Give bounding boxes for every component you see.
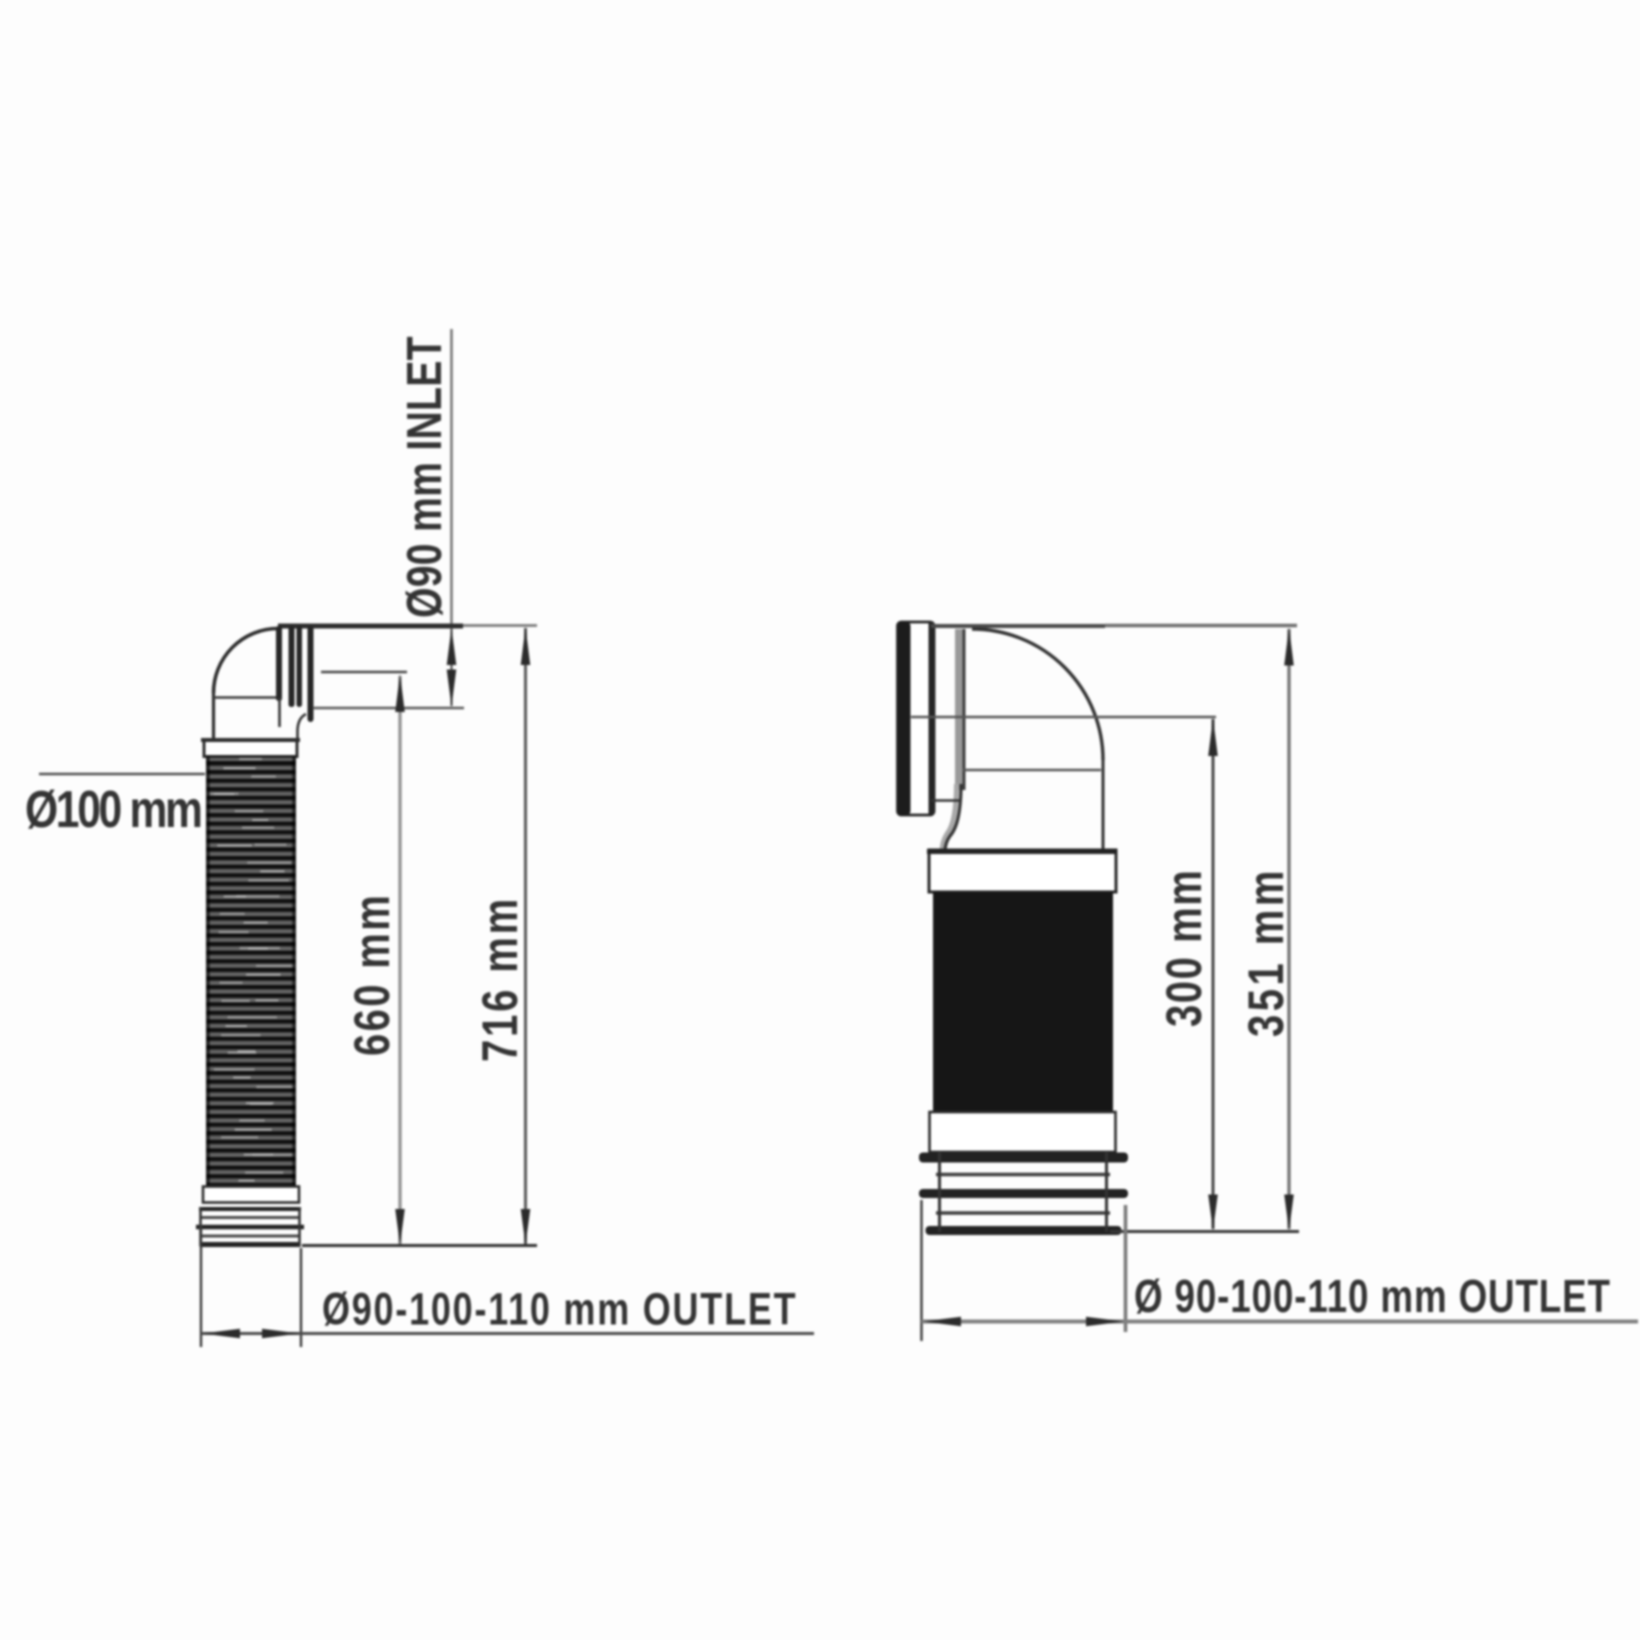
svg-text:Ø 90-100-110 mm OUTLET: Ø 90-100-110 mm OUTLET — [1134, 1270, 1610, 1322]
svg-text:716 mm: 716 mm — [472, 899, 528, 1062]
svg-text:351 mm: 351 mm — [1238, 871, 1294, 1037]
svg-text:660 mm: 660 mm — [344, 895, 400, 1056]
svg-text:Ø90 mm INLET: Ø90 mm INLET — [398, 336, 452, 618]
svg-text:Ø100 mm: Ø100 mm — [25, 781, 203, 839]
svg-text:Ø90-100-110 mm OUTLET: Ø90-100-110 mm OUTLET — [322, 1284, 796, 1335]
svg-text:300 mm: 300 mm — [1156, 870, 1212, 1027]
